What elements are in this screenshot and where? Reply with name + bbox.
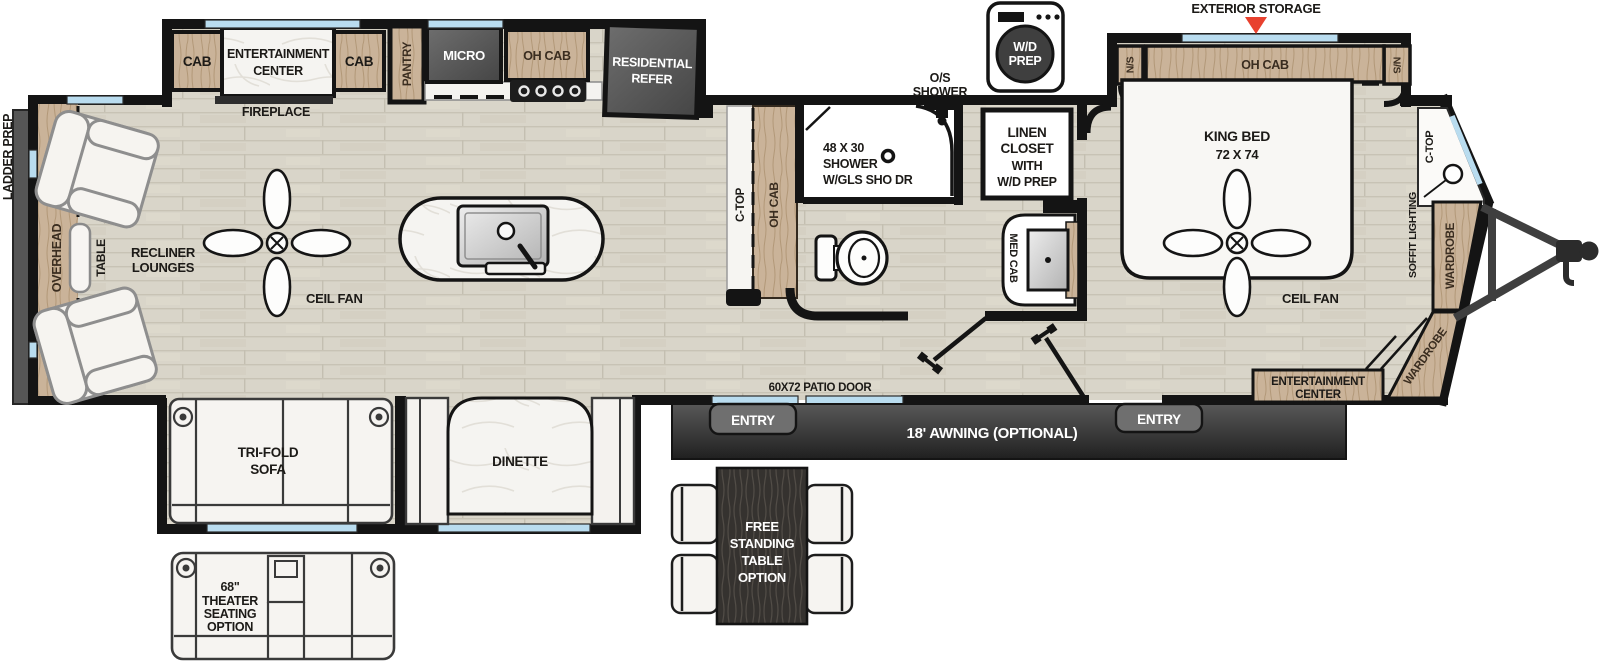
fst-label-4: OPTION — [738, 570, 786, 585]
wardrobe-side-label: WARDROBE — [1445, 222, 1457, 289]
fireplace-label: FIREPLACE — [242, 105, 310, 119]
entry-main-label: ENTRY — [731, 413, 775, 428]
theater-console — [268, 556, 304, 602]
fireplace-unit — [215, 96, 333, 104]
hitch-coupler — [1556, 240, 1582, 262]
fst-label-1: FREE — [745, 519, 779, 534]
galley-counter-right — [586, 82, 602, 100]
cab-right-label: CAB — [345, 54, 374, 69]
shower-label-1: 48 X 30 — [823, 141, 864, 155]
bed-ent-label-2: CENTER — [1295, 389, 1341, 401]
sink-drain — [498, 223, 514, 239]
pantry-label: PANTRY — [402, 41, 414, 86]
entry-door-bedroom: ENTRY — [1116, 404, 1202, 432]
cab-left-label: CAB — [183, 54, 212, 69]
tongue-jack-handle — [1566, 262, 1574, 283]
refer-label-1: RESIDENTIAL — [612, 55, 693, 72]
theater-label-3: SEATING — [204, 607, 257, 621]
glass-shower-door — [803, 197, 963, 204]
bed-ent-label-1: ENTERTAINMENT — [1271, 376, 1365, 388]
ns-left-label: N/S — [1125, 56, 1137, 73]
ladder-prep-label: LADDER PREP — [1, 114, 15, 200]
soffit-lighting-label: SOFFIT LIGHTING — [1407, 192, 1419, 278]
living-ceil-fan-label: CEIL FAN — [306, 291, 363, 306]
residential-refrigerator: RESIDENTIAL REFER — [605, 25, 700, 118]
entry-bed-label: ENTRY — [1137, 412, 1181, 427]
theater-label-1: 68" — [221, 580, 240, 594]
theater-label-2: THEATER — [202, 594, 258, 608]
recliner-label-2: LOUNGES — [132, 260, 195, 275]
wd-prep-label-1: W/D — [1013, 40, 1037, 54]
sofa-label-1: TRI-FOLD — [238, 445, 299, 460]
side-table — [70, 224, 90, 292]
linen-label-1: LINEN — [1007, 125, 1046, 140]
sofa-label-2: SOFA — [250, 462, 286, 477]
galley-oh-cab-label: OH CAB — [523, 49, 571, 63]
front-ctop-label: C-TOP — [1424, 131, 1436, 164]
tri-fold-sofa: TRI-FOLD SOFA — [170, 399, 392, 523]
toilet — [816, 232, 887, 284]
shower-label-2: SHOWER — [823, 157, 878, 171]
patio-door-label: 60X72 PATIO DOOR — [769, 382, 873, 394]
awning-label: 18' AWNING (OPTIONAL) — [907, 425, 1078, 442]
shower-label-3: W/GLS SHO DR — [823, 173, 913, 187]
hitch-ball — [1580, 242, 1599, 261]
king-bed-label-2: 72 X 74 — [1216, 147, 1260, 162]
free-standing-table-option: FREE STANDING TABLE OPTION — [672, 468, 852, 624]
cooktop — [510, 80, 586, 102]
washer-dryer-prep-icon: W/D PREP — [988, 3, 1063, 91]
peninsula-end-wall — [726, 289, 761, 306]
entertainment-center — [222, 28, 334, 96]
refer-label-2: REFER — [631, 71, 673, 86]
dinette-bench-right — [592, 398, 634, 524]
os-shower-label-1: O/S — [930, 71, 951, 85]
linen-closet: LINEN CLOSET WITH W/D PREP — [983, 110, 1071, 198]
micro-label: MICRO — [443, 48, 485, 63]
bedroom-ceil-fan-label: CEIL FAN — [1282, 291, 1339, 306]
kitchen-oh-cab-label: OH CAB — [767, 182, 781, 228]
kitchen-island — [400, 198, 603, 280]
kitchen-ctop-label: C-TOP — [735, 187, 747, 222]
overhead-label: OVERHEAD — [50, 224, 64, 293]
kitchen-peninsula: C-TOP OH CAB — [726, 106, 797, 306]
theater-seating-option: 68" THEATER SEATING OPTION — [172, 553, 394, 659]
ns-right-label: N/S — [1391, 57, 1403, 74]
slide-divider-wall — [395, 396, 406, 531]
table-label: TABLE — [94, 239, 108, 277]
soffit-light-icon — [1444, 165, 1462, 183]
counter-drawer-ticks — [434, 95, 504, 99]
dinette-bench-left — [406, 398, 448, 524]
exterior-storage-marker-icon — [1245, 17, 1267, 34]
bed-oh-cab-label: OH CAB — [1241, 58, 1289, 72]
dinette: DINETTE — [406, 398, 634, 524]
patio-door-panel-2 — [806, 396, 903, 404]
shower-drain — [883, 151, 894, 162]
vanity: MED CAB — [1003, 215, 1078, 305]
linen-label-4: W/D PREP — [997, 175, 1056, 189]
linen-label-3: WITH — [1012, 159, 1043, 173]
exterior-storage-label: EXTERIOR STORAGE — [1191, 1, 1321, 16]
dinette-label: DINETTE — [492, 454, 548, 469]
theater-label-4: OPTION — [207, 620, 253, 634]
linen-label-2: CLOSET — [1001, 141, 1055, 156]
king-bed-label-1: KING BED — [1204, 128, 1270, 144]
recliner-label-1: RECLINER — [131, 245, 196, 260]
rear-bumper: LADDER PREP — [1, 110, 29, 404]
ent-center-label-1: ENTERTAINMENT — [227, 47, 330, 61]
rv-floorplan-page: LADDER PREP CAB ENTERTAINMENT CENTER CAB… — [0, 0, 1600, 668]
floorplan-canvas: LADDER PREP CAB ENTERTAINMENT CENTER CAB… — [0, 0, 1600, 668]
fst-label-3: TABLE — [742, 553, 783, 568]
wd-prep-label-2: PREP — [1009, 54, 1042, 68]
fst-label-2: STANDING — [730, 536, 795, 551]
entry-door-main: ENTRY — [710, 404, 796, 434]
med-cab-label: MED CAB — [1007, 233, 1019, 283]
ent-center-label-2: CENTER — [253, 64, 303, 78]
